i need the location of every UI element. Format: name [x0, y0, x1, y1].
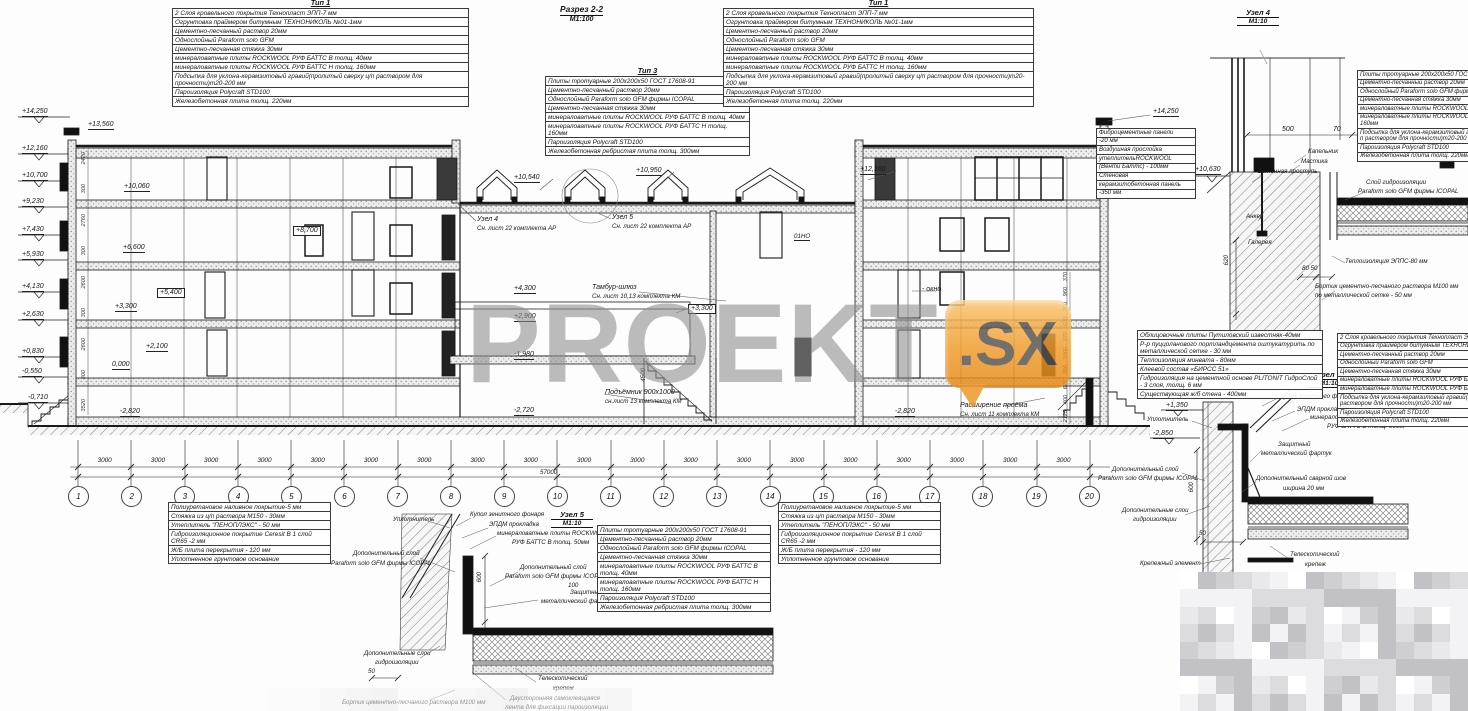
roof-elevation: +12,160 [860, 166, 886, 175]
spec-row: Ж/Б плита перекрытия - 120 мм [779, 546, 940, 555]
node5-epdm-label: ЭПДМ прокладка [489, 521, 539, 528]
censor-cell [1198, 589, 1216, 606]
censor-cell [1378, 624, 1396, 641]
censor-cell [1378, 676, 1396, 693]
censor-cell [1180, 694, 1198, 711]
node5-dim-50: 50 [368, 668, 375, 675]
dimension-value: 2125 [1063, 410, 1069, 422]
node6-elevation-2: -2,850 [1153, 430, 1173, 439]
censor-cell [1450, 659, 1468, 676]
spec-row: Уплотненное грунтовое основание [169, 555, 330, 563]
node4-dim-500: 500 [1282, 126, 1294, 134]
spec-row: Огрунтовка праймером битумным ТЕХНОНИКОЛ… [173, 18, 468, 27]
censor-cell [1450, 589, 1468, 606]
axis-bubble: 6 [334, 486, 355, 507]
watermark-badge: .SX [945, 300, 1071, 388]
spec-row: Цементно-песчанный раствор 20мм [546, 86, 749, 95]
spec-row: Подсыпка для уклона-керамзитовый гравий(… [1338, 394, 1468, 409]
elevation-label: +2,630 [22, 311, 44, 320]
bay-dimension: 3000 [877, 457, 930, 464]
censor-cell [1450, 607, 1468, 624]
censor-cell [1360, 572, 1378, 589]
elevation-label: +12,160 [22, 145, 48, 154]
elevation-label: +5,930 [22, 251, 44, 260]
node6-dim-50: 50 [1199, 530, 1206, 537]
floor-elevation: -2,720 [514, 407, 534, 416]
watermark: PROEKT .SX [466, 294, 1071, 395]
node6-dop-label-2: Paraform solo GFM фирмы ICOPAL [1098, 475, 1198, 482]
dimension-value: 370 [1063, 272, 1069, 281]
censor-cell [1342, 642, 1360, 659]
node6-telescop-label-2: крепеж [1305, 561, 1326, 568]
spec-row: Утеплитель "ПЕНОПЛЭКС" - 50 мм [169, 521, 330, 530]
censor-cell [1378, 642, 1396, 659]
spec-row: Пароизоляция Polycraft STD100 [1338, 409, 1468, 418]
spec-row: Плиты тротуарные 200х200х50 ГОСТ 17608-9… [598, 526, 770, 535]
censor-cell [1324, 659, 1342, 676]
censor-cell [1324, 589, 1342, 606]
spec-row: Пароизоляция Polycraft STD100 [546, 138, 749, 147]
spec-table-floor-right: Полиуретановое наливное покрытие-5 ммСтя… [778, 502, 941, 564]
floor-elevation: -2,820 [895, 408, 915, 417]
node6-gidro-label-2: гидроизоляции [1133, 516, 1177, 523]
spec-row: Пароизоляция Polycraft STD100 [1358, 144, 1468, 153]
spec-row: Пароизоляция Polycraft STD100 [598, 594, 770, 603]
node4-elevation: +10,630 [1195, 166, 1221, 175]
censor-cell [1234, 572, 1252, 589]
dimension-value: 2600 [81, 338, 87, 350]
censor-cell [1324, 676, 1342, 693]
censor-cell [1378, 572, 1396, 589]
axis-bubble: 2 [121, 486, 142, 507]
node4-anker-label: Анкер [1246, 213, 1263, 220]
bay-dimension: 3000 [717, 457, 770, 464]
censor-cell [1306, 694, 1324, 711]
spec-row: Цементно-песчанный раствор 20мм [598, 535, 770, 544]
spec-table-title: Тип 3 [545, 66, 750, 75]
censor-cell [1198, 694, 1216, 711]
censor-cell [1396, 642, 1414, 659]
censor-cell [1216, 694, 1234, 711]
spec-row: минераловатные плиты ROCKWOOL РУФ БАТТС … [724, 63, 1033, 72]
censor-cell [1198, 642, 1216, 659]
censor-cell [1252, 572, 1270, 589]
axis-bubble: 1 [68, 486, 89, 507]
censor-cell [1288, 607, 1306, 624]
censor-cell [1396, 624, 1414, 641]
censor-cell [1432, 607, 1450, 624]
bay-dimension: 3000 [451, 457, 504, 464]
censor-cell [1342, 572, 1360, 589]
node4-elevation-top: +14,250 [1153, 108, 1179, 117]
spec-row: Стяжка из ц/п раствора М150 - 30мм [779, 512, 940, 521]
bay-dimension: 3000 [78, 457, 131, 464]
censor-cell [1432, 676, 1450, 693]
bay-dimension: 3000 [824, 457, 877, 464]
left-dimension-chain: 24203002760300260030026003003520 [81, 152, 87, 412]
spec-row: Однослойный Paraform solo GFM [173, 36, 468, 45]
censor-cell [1270, 694, 1288, 711]
opening-sheet: Сн. лист 11 комплекта КМ [960, 411, 1039, 418]
spec-row: минераловатные плиты ROCKWOOL РУФ БАТТС … [1338, 377, 1468, 386]
node5-dop1-label-1: Дополнительный слой [353, 550, 420, 557]
spec-row: Подсыпка для уклона-керамзитовый гравий(… [1358, 129, 1468, 144]
censor-cell [1216, 624, 1234, 641]
censor-cell [1324, 624, 1342, 641]
node6-shov-label-2: ширина 20 мм [1283, 485, 1324, 492]
spec-row: -350 мм [1097, 190, 1195, 198]
censor-cell [1216, 607, 1234, 624]
censor-cell [1414, 642, 1432, 659]
censor-cell [1450, 694, 1468, 711]
censor-cell [1288, 624, 1306, 641]
censor-cell [294, 688, 320, 711]
node5-kupol-label: Купол зенитного фонаря [470, 511, 544, 518]
censor-cell [476, 688, 502, 711]
drawing-canvas: Разрез 2-2 М1:100 +14,250 +12,160 +10,70… [0, 0, 1468, 711]
spec-row: Однослойный Paraform solo GFM фирмы ICOP… [598, 544, 770, 553]
censor-cell [1270, 572, 1288, 589]
dimension-value: 2760 [81, 214, 87, 226]
dimension-value: 3520 [81, 399, 87, 411]
censor-cell [1360, 676, 1378, 693]
censor-cell [1198, 607, 1216, 624]
spec-row: Цементно-песчанный раствор 20мм [1338, 351, 1468, 360]
axis-bubble: 18 [972, 486, 993, 507]
censor-cell [1306, 642, 1324, 659]
censor-cell [1360, 642, 1378, 659]
censor-cell [1234, 642, 1252, 659]
floor-elevation: +8,700 [293, 226, 321, 236]
room-label: 01НО [794, 233, 810, 241]
censor-cell [1396, 694, 1414, 711]
spec-row: Гидроизоляционное покрытие Ceresit В 1 с… [169, 530, 330, 546]
censor-cell [1180, 624, 1198, 641]
spec-row: Ж/Б плита перекрытия - 120 мм [169, 546, 330, 555]
spec-row: Огрунтовка праймером битумным ТЕХНОНИКОЛ… [724, 18, 1033, 27]
spec-table-pavement-type3: Тип 3 Плиты тротуарные 200х200х50 ГОСТ 1… [545, 66, 750, 156]
spec-row: Огрунтовка праймером битумным ТЕХНОНИКОЛ… [1338, 343, 1468, 352]
spec-row: Цементно-песчанная стяжка 30мм [1358, 97, 1468, 106]
node5-uplotnitel-label: Уплотнитель [393, 516, 434, 523]
node5-dim-600: 600 [476, 572, 483, 582]
censor-cell [1360, 659, 1378, 676]
censor-cell [1342, 659, 1360, 676]
node5-reference: Узел 5 [612, 214, 633, 222]
node6-telescop-label-1: Телескопический [1290, 551, 1339, 558]
censor-cell [1234, 676, 1252, 693]
node5-title: Узел 5 М1:10 [551, 510, 593, 528]
censor-cell [1270, 589, 1288, 606]
axis-bubble: 11 [600, 486, 621, 507]
censor-cell [1180, 676, 1198, 693]
node-title-text: Узел 4 [1237, 8, 1279, 18]
node4-reference-sheet: Сн. лист 22 комплекта АР [477, 225, 556, 232]
node5-gidro-label-1: Дополнительные слои [364, 650, 431, 657]
watermark-badge-text: .SX [958, 309, 1058, 380]
bay-dimension: 3000 [504, 457, 557, 464]
node4-dim-620: 620 [1223, 255, 1230, 265]
node6-dop-label-1: Дополнительный слой [1112, 466, 1179, 473]
censor-cell [1342, 676, 1360, 693]
spec-row: Цементно-песчанная стяжка 30мм [546, 104, 749, 113]
censor-cell [1288, 642, 1306, 659]
censored-region-strip [268, 688, 632, 711]
spec-table-facade-panels: Фиброцементные панели-20 ммВоздушная про… [1096, 128, 1196, 199]
watermark-text: PROEKT [466, 294, 939, 395]
censor-cell [1252, 659, 1270, 676]
censor-cell [1288, 589, 1306, 606]
spec-row: Теплоизоляция минвата - 80мм [1138, 356, 1322, 365]
spec-row: Стеновая [1097, 173, 1195, 182]
censor-cell [1324, 572, 1342, 589]
spec-row: минераловатные плиты ROCKWOOL РУФ БАТТС … [173, 63, 468, 72]
node5-dop2-label-2: Paraform solo GFM фирмы ICOPAL [505, 573, 605, 580]
spec-table-roof-type1-left: Тип 1 2 Слоя кровельного покрытия Техноп… [172, 0, 469, 107]
censor-cell [1360, 624, 1378, 641]
elevation-label: -0,550 [22, 368, 42, 377]
roof-elevation: +10,950 [636, 167, 662, 176]
censor-cell [1180, 589, 1198, 606]
censor-cell [1252, 676, 1270, 693]
spec-row: Стяжка из ц/п раствора М150 - 30мм [169, 512, 330, 521]
spec-row: 2 Слоя кровельного покрытия Технопласт Э… [724, 9, 1033, 18]
censor-cell [1396, 659, 1414, 676]
node6-shov-label-1: Дополнительный сварной шов [1256, 475, 1346, 482]
censor-cell [1432, 572, 1450, 589]
bay-dimension: 3000 [1037, 457, 1090, 464]
censor-cell [1306, 659, 1324, 676]
bay-dimension: 3000 [291, 457, 344, 464]
bay-dimension: 3000 [344, 457, 397, 464]
spec-row: Железобетонная плита толщ. 220мм [724, 97, 1033, 105]
censor-cell [1198, 676, 1216, 693]
spec-row: Плиты тротуарные 200х200х50 ГОСТ 17608-9… [546, 77, 749, 86]
spec-row: Железобетонная плита толщ. 220мм [1338, 418, 1468, 426]
censor-cell [1324, 607, 1342, 624]
axis-bubble: 13 [706, 486, 727, 507]
node5-minplit-label-1: минераловатные плиты ROCKWOOL [497, 530, 609, 537]
bay-dimension: 3000 [557, 457, 610, 464]
censor-cell [1234, 694, 1252, 711]
node4-insulation-label: Теплоизоляция ЭППС-80 мм [1345, 258, 1428, 265]
node5-gidro-label-2: гидроизоляции [375, 659, 419, 666]
censor-cell [1288, 659, 1306, 676]
spec-row: Цементно-песчанный раствор 20мм [173, 27, 468, 36]
node4-waterproofing-label-2: Paraform solo GFM фирмы ICOPAL [1358, 188, 1458, 195]
node4-bortik-label-2: по металлической сетке - 50 мм [1315, 292, 1412, 299]
node6-uplotnitel-label: Уплотнитель [1147, 416, 1188, 423]
node6-fartuk-label-2: металлический фартук [1261, 450, 1332, 457]
censor-cell [1414, 694, 1432, 711]
spec-row: Цементно-песчанная стяжка 30мм [724, 45, 1033, 54]
censored-region-large [1180, 572, 1468, 711]
spec-row: Утеплитель "ПЕНОПЛЭКС" - 50 мм [779, 521, 940, 530]
censor-cell [1450, 642, 1468, 659]
censor-cell [1342, 607, 1360, 624]
censor-cell [554, 688, 580, 711]
bay-dimension: 3000 [770, 457, 823, 464]
parapet-elevation: +13,560 [88, 121, 114, 130]
node4-dim-80-50: 80 50 [1302, 265, 1317, 272]
spec-row: минераловатные плиты ROCKWOOL РУФ БАТТС … [1358, 105, 1468, 114]
censor-cell [398, 688, 424, 711]
censor-cell [1270, 607, 1288, 624]
censor-cell [268, 688, 294, 711]
censor-cell [1432, 694, 1450, 711]
spec-row: Однослойный Paraform solo GFM фирмы [1358, 88, 1468, 97]
spec-row: минераловатные плиты ROCKWOOL РУФ БАТТС … [724, 54, 1033, 63]
node6-dim-600: 600 [1188, 482, 1195, 492]
elevation-label: +10,700 [22, 172, 48, 181]
censor-cell [1270, 659, 1288, 676]
spec-row: Воздушная прослойка [1097, 146, 1195, 155]
node6-gidro-label-1: Дополнительные слои [1122, 507, 1189, 514]
node6-krep-label: Крепежный элемент [1140, 560, 1201, 567]
floor-elevation: +5,400 [157, 288, 185, 298]
roof-elevation: +10,540 [514, 174, 540, 183]
axis-bubble: 19 [1026, 486, 1047, 507]
censor-cell [1342, 694, 1360, 711]
censor-cell [1252, 607, 1270, 624]
dimension-value: 2420 [81, 152, 87, 164]
node4-reference: Узел 4 [477, 216, 498, 224]
spec-table-floor-left: Полиуретановое наливное покрытие-5 ммСтя… [168, 502, 331, 564]
censor-cell [1216, 572, 1234, 589]
bay-dimension: 3000 [611, 457, 664, 464]
title-text: Разрез 2-2 [560, 5, 603, 16]
censor-cell [1270, 624, 1288, 641]
spec-row: Гидроизоляционное покрытие Ceresit В 1 с… [779, 530, 940, 546]
node5-dop1-label-2: Paraform solo GFM фирмы ICOPAL [331, 560, 431, 567]
spec-row: минераловатные плиты ROCKWOOL РУФ БАТТС … [598, 562, 770, 578]
spec-row: Пароизоляция Polycraft STD100 [724, 88, 1033, 97]
node6-fartuk-label-1: Защитный [1278, 441, 1311, 448]
spec-row: Однослойный Paraform solo GFM [1338, 360, 1468, 369]
censor-cell [1414, 607, 1432, 624]
censor-cell [1432, 642, 1450, 659]
elevation-label: -0,710 [28, 394, 48, 403]
censor-cell [1378, 589, 1396, 606]
axis-bubble: 7 [387, 486, 408, 507]
spec-row: Подсыпка для уклона-керамзитовый гравий(… [173, 72, 468, 88]
bay-dimension: 3000 [664, 457, 717, 464]
censor-cell [1414, 624, 1432, 641]
spec-row: Пароизоляция Polycraft STD100 [173, 88, 468, 97]
censor-cell [1198, 659, 1216, 676]
censor-cell [346, 688, 372, 711]
elevation-label: +9,230 [22, 198, 44, 207]
title-scale: М1:100 [560, 16, 603, 24]
dimension-value: 400 [1063, 395, 1069, 404]
drawing-title: Разрез 2-2 М1:100 [560, 5, 603, 24]
floor-elevation: +2,100 [146, 343, 168, 352]
censor-cell [1414, 676, 1432, 693]
elevation-label: +0,830 [22, 348, 44, 357]
censor-cell [1288, 694, 1306, 711]
spec-row: Полиуретановое наливное покрытие-5 мм [169, 503, 330, 512]
censor-cell [1234, 607, 1252, 624]
axis-bubble: 8 [440, 486, 461, 507]
node-title-scale: М1:10 [551, 520, 593, 528]
spec-row: Уплотненное грунтовое основание [779, 555, 940, 563]
floor-elevation: -2,820 [120, 408, 140, 417]
censor-cell [1414, 589, 1432, 606]
spec-row: Клеевой состав «БИРСС 51» [1138, 365, 1322, 374]
elevation-label: +14,250 [22, 108, 48, 117]
spec-row: Железобетонная ребристая плита толщ. 300… [598, 603, 770, 611]
censor-cell [1288, 572, 1306, 589]
spec-row: минераловатные плиты ROCKWOOL РУФ БАТТС … [1338, 386, 1468, 395]
axis-bubble: 9 [494, 486, 515, 507]
dimension-value: 300 [81, 308, 87, 317]
censor-cell [1324, 642, 1342, 659]
censor-cell [1306, 607, 1324, 624]
censor-cell [1396, 572, 1414, 589]
censor-cell [1432, 659, 1450, 676]
censor-cell [1360, 607, 1378, 624]
spec-row: минераловатные плиты ROCKWOOL РУФ БАТТС … [173, 54, 468, 63]
dimension-value: 300 [81, 246, 87, 255]
node5-telescop-label-1: Телескопический [538, 675, 587, 682]
censor-cell [580, 688, 606, 711]
censor-cell [1450, 676, 1468, 693]
censor-cell [1270, 642, 1288, 659]
censor-cell [1234, 624, 1252, 641]
dimension-value: 300 [81, 370, 87, 379]
censor-cell [1432, 624, 1450, 641]
censor-cell [1342, 589, 1360, 606]
spec-row: Существующая ж/б стена - 400мм [1138, 390, 1322, 398]
censor-cell [1306, 624, 1324, 641]
spec-row: Железобетонная плита толщ. 220мм [1358, 153, 1468, 161]
spec-table-limestone: Облицовочные плиты Путиловский известняк… [1137, 330, 1323, 399]
censor-cell [1450, 572, 1468, 589]
censor-cell [1216, 589, 1234, 606]
censor-cell [1252, 642, 1270, 659]
censor-cell [1306, 572, 1324, 589]
spec-row: 2 Слоя кровельного покрытия Технопласт Э… [1338, 334, 1468, 343]
bay-dimension: 3000 [984, 457, 1037, 464]
spec-row: Цементно-песчанная стяжка 30мм [598, 553, 770, 562]
censor-cell [1198, 624, 1216, 641]
spec-row: Р-р пуццоланового портландцемента оштука… [1138, 340, 1322, 356]
censor-cell [1342, 624, 1360, 641]
censor-cell [1396, 676, 1414, 693]
censor-cell [1252, 624, 1270, 641]
censor-cell [1180, 642, 1198, 659]
spec-row: минераловатные плиты ROCKWOOL РУФ БАТТС … [598, 578, 770, 594]
censor-cell [1378, 607, 1396, 624]
censor-cell [1306, 589, 1324, 606]
dimension-lines [70, 440, 1110, 490]
axis-bubble: 12 [653, 486, 674, 507]
elevation-label: +7,430 [22, 226, 44, 235]
spec-row: Цементно-песчанная стяжка 30мм [1338, 368, 1468, 377]
bay-dimension-row: 3000300030003000300030003000300030003000… [78, 457, 1090, 464]
spec-table-title: Тип 1 [723, 0, 1034, 7]
censor-cell [1396, 607, 1414, 624]
node4-mastika-label: Мастика [1301, 158, 1328, 165]
node4-prostup-label: Бетонная проступь [1258, 168, 1317, 175]
node4-bortik-label-1: Бортик цементно-песчаного раствора М100 … [1315, 283, 1458, 290]
bay-dimension: 3000 [398, 457, 451, 464]
censor-cell [1216, 642, 1234, 659]
spec-row: Плиты тротуарные 200х200х50 ГОСТ [1358, 71, 1468, 80]
censor-cell [1234, 659, 1252, 676]
censor-cell [1216, 659, 1234, 676]
node-title-scale: М1:10 [1237, 18, 1279, 26]
